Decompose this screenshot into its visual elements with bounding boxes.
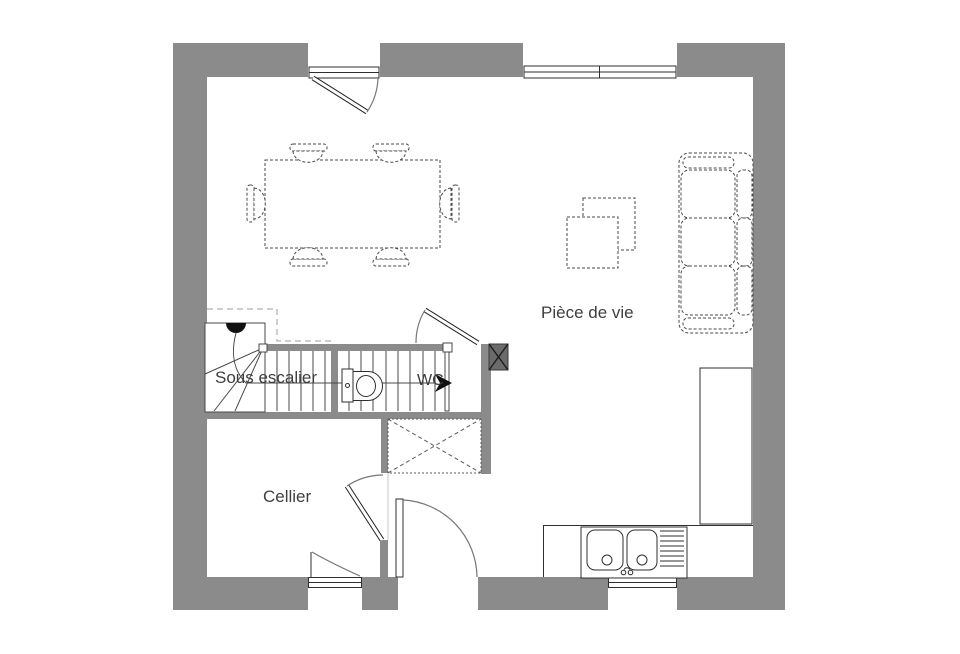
wc-door <box>416 310 478 343</box>
garden-door-frame <box>309 67 379 78</box>
entry-door <box>396 499 477 577</box>
floor-plan-drawing <box>0 0 960 654</box>
under-stairs-label: Sous escalier <box>215 368 317 388</box>
garden-door <box>313 78 378 112</box>
sofa <box>679 153 753 333</box>
floor-plan: Pièce de vie Sous escalier WC Cellier <box>0 0 960 654</box>
dining-chair <box>440 185 459 222</box>
dining-chair <box>247 185 265 222</box>
cellar-label: Cellier <box>263 487 311 507</box>
cellar-door <box>347 475 383 540</box>
top-window <box>524 66 676 78</box>
duct-box <box>388 419 481 473</box>
tall-cabinet <box>700 368 752 524</box>
dining-chair <box>373 248 409 266</box>
living-room-label: Pièce de vie <box>541 303 634 323</box>
cellar-window <box>309 552 362 588</box>
entry-door-opening <box>398 577 478 610</box>
technical-post <box>489 344 508 370</box>
kitchen-sink <box>581 527 687 578</box>
dining-table <box>265 160 440 248</box>
toilet <box>342 369 383 402</box>
dining-chair <box>290 248 327 266</box>
wc-label: WC <box>417 372 444 390</box>
dining-chair <box>373 144 409 162</box>
coffee-table <box>567 198 635 268</box>
